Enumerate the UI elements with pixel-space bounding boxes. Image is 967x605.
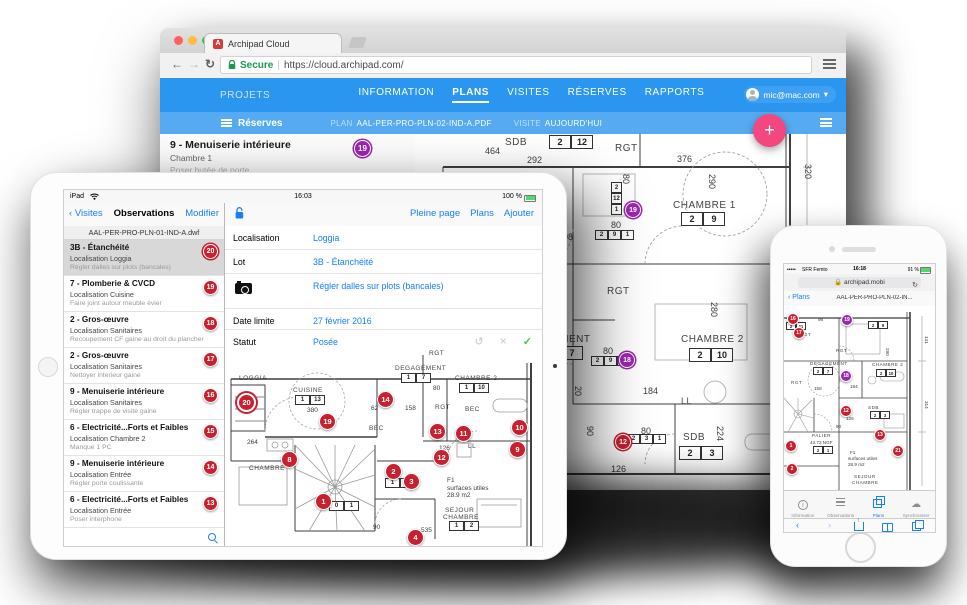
plan-label: 280 (709, 302, 719, 317)
account-menu[interactable]: mic@mac.com ▾ (744, 86, 836, 103)
plan-label: DEGAGEMENT (395, 365, 446, 372)
visite-label: VISITE (514, 119, 541, 128)
statut-value[interactable]: Posée (313, 337, 338, 347)
unlock-icon[interactable] (234, 207, 245, 220)
plan-label: 43.72 NGF (810, 440, 832, 445)
iphone-camera (829, 246, 835, 252)
plans-icon (873, 496, 884, 507)
plan-value[interactable]: AAL-PER-PRO-PLN-02-IND-A.PDF (357, 119, 492, 128)
plan-label: 90 (373, 524, 380, 531)
forward-icon[interactable]: › (828, 520, 831, 530)
browser-menu-icon[interactable] (823, 59, 836, 70)
observations-list: AAL-PER-PRO-PLN-01-IND-A.dwf 3B - Étanch… (64, 226, 225, 546)
iphone-speaker (842, 247, 876, 252)
back-to-plans-button[interactable]: ‹ Plans (788, 294, 810, 301)
plan-label: 20 (573, 386, 583, 396)
field-label: Statut (233, 337, 256, 347)
browser-tabstrip: A Archipad Cloud (160, 28, 846, 54)
avatar (746, 88, 759, 101)
undo-icon[interactable]: ↺ (475, 335, 484, 348)
field-label: Date limite (233, 316, 275, 326)
lot-count-box: 110 (459, 383, 489, 393)
clock: 16:03 (64, 193, 542, 200)
plan-label: PALIER (812, 433, 831, 438)
tab-title: Archipad Cloud (228, 39, 290, 49)
plan-label: RGT (615, 143, 638, 154)
plan-label: 184 (850, 384, 858, 389)
obs-title: 6 - Electricité...Forts et Faibles (70, 495, 218, 504)
reserves-menu-icon[interactable] (221, 119, 232, 127)
app-subtoolbar: Réserves PLAN AAL-PER-PRO-PLN-02-IND-A.P… (160, 112, 846, 134)
marketing-composition: A Archipad Cloud ← → ↻ Secure | https://… (0, 0, 967, 605)
obs-title: 2 - Gros-œuvre (70, 315, 218, 324)
battery-icon (920, 267, 931, 274)
obs-location: Localisation Cuisine (70, 290, 218, 299)
observation-marker[interactable]: 1 (785, 440, 797, 452)
info-icon: i (798, 500, 808, 510)
observation-marker[interactable]: 20 (237, 393, 256, 412)
plan-label: 80 (621, 174, 631, 184)
status-badge: 19 (354, 140, 371, 157)
lot-value[interactable]: 3B - Étanchéité (313, 257, 373, 267)
obs-location: Localisation Entrée (70, 506, 218, 515)
obs-note: Poser interphone (70, 516, 218, 523)
plan-label: 62 (371, 405, 378, 412)
plan-label: CHAMBRE 1 (673, 200, 736, 211)
note-value[interactable]: Régler dalles sur plots (bancales) (313, 281, 444, 291)
nav-item[interactable]: VISITES (507, 87, 550, 103)
plan-file-name: AAL-PER-PRO-PLN-01-IND-A.dwf (64, 226, 224, 240)
obs-number-badge: 17 (203, 352, 218, 367)
plan-label: 80 (603, 346, 613, 356)
lot-count-box: 27 (813, 367, 833, 375)
obs-title: 9 - Menuiserie intérieure (70, 387, 218, 396)
plan-label: CUISINE (293, 387, 323, 394)
obs-note: Manque 1 PC (70, 444, 218, 451)
url-text: archipad.mobi (844, 279, 885, 286)
obs-title: 6 - Electricité...Forts et Faibles (70, 423, 218, 432)
plan-label: 28.9 m2 (848, 462, 865, 467)
lock-icon (228, 60, 236, 70)
plan-label: 464 (485, 146, 500, 156)
plan-label: 141 (924, 336, 929, 344)
lock-icon: 🔒 (834, 279, 842, 286)
favicon: A (213, 39, 223, 49)
lot-count-box: 29 (868, 321, 888, 329)
plan-label: CHAMBRE 2 (872, 362, 903, 367)
observation-marker[interactable]: 4 (407, 529, 424, 546)
nav-item[interactable]: PLANS (452, 87, 489, 103)
iphone-floorplan[interactable]: 98RGTRGT290DEGAGEMENTCHAMBRE 2RGT158184S… (784, 306, 935, 490)
observation-marker[interactable]: 19 (319, 413, 336, 430)
search-icon[interactable] (208, 533, 218, 543)
plan-label: F1 (447, 477, 455, 484)
iphone-home-button[interactable] (845, 532, 876, 563)
plan-label: 264 (247, 439, 258, 446)
plan-label: 80 (433, 385, 440, 392)
battery-icon (524, 195, 536, 202)
observation-marker[interactable]: 19 (841, 314, 853, 326)
observation-list-item[interactable]: 3B - Étanchéité Localisation Loggia Régl… (64, 240, 224, 276)
nav-item[interactable]: RÉSERVES (568, 87, 627, 103)
plan-label: LL (468, 443, 476, 450)
plan-label: 28.9 m2 (447, 492, 471, 499)
obs-number-badge: 15 (203, 424, 218, 439)
battery-percent: 100 % (502, 193, 522, 200)
reload-icon[interactable]: ↻ (912, 280, 918, 291)
observation-marker[interactable]: 18 (840, 370, 852, 382)
browser-urlbar: ← → ↻ Secure | https://cloud.archipad.co… (160, 53, 846, 79)
action-button[interactable]: Ajouter (504, 208, 534, 219)
plan-actions: Pleine pagePlansAjouter (410, 208, 534, 219)
plan-label: 380 (307, 407, 318, 414)
observation-marker[interactable]: 11 (455, 425, 472, 442)
account-email: mic@mac.com (763, 90, 819, 100)
lot-count-box: 2121 (611, 182, 622, 215)
share-icon[interactable] (854, 522, 864, 531)
back-icon[interactable]: ← (171, 57, 183, 71)
plan-label: CHAMBRE 2 (455, 375, 497, 382)
obs-location: Localisation Loggia (70, 254, 218, 263)
plan-label: 290 (707, 174, 717, 189)
obs-location: Localisation Sanitaires (70, 362, 218, 371)
lot-count-box: 01 (329, 501, 359, 511)
validate-icon[interactable]: ✓ (523, 335, 532, 348)
ipad-toolbar: ‹ Visites Observations Modifier Pleine p… (64, 203, 542, 227)
nav-item[interactable]: INFORMATION (358, 87, 434, 103)
ipad-screen: iPad 16:03 100 % ‹ Visites Observations … (63, 189, 543, 547)
view-list-icon[interactable] (820, 118, 832, 128)
plan-label: 314 (924, 401, 929, 409)
ipad-camera (553, 364, 557, 368)
plan-label: LL (681, 396, 692, 406)
observation-marker[interactable]: 19 (625, 202, 641, 218)
iphone-status-bar: ••••• SFR Femto 16:18 91 % (784, 264, 935, 274)
url-field[interactable]: Secure | https://cloud.archipad.com/ (220, 56, 812, 74)
obs-note: Régler porte coulissante (70, 480, 218, 487)
obs-title: 2 - Gros-œuvre (70, 351, 218, 360)
plan-label: 158 (814, 386, 822, 391)
observation-marker[interactable]: 8 (281, 451, 298, 468)
observation-marker[interactable]: 12 (615, 434, 631, 450)
plan-label: 320 (803, 164, 813, 179)
observation-marker[interactable]: 18 (619, 352, 635, 368)
plan-label: DEGAGEMENT (810, 361, 848, 366)
observation-list-item[interactable]: 9 - Menuiserie intérieure Localisation S… (64, 384, 224, 420)
iphone-device: ••••• SFR Femto 16:18 91 % 🔒 archipad.mo… (770, 225, 947, 567)
observation-marker[interactable]: 13 (429, 423, 446, 440)
date-value[interactable]: 27 février 2016 (313, 316, 372, 326)
plan-label: RGT (435, 404, 450, 411)
camera-icon[interactable] (235, 283, 252, 294)
lot-count-box: 291 (595, 230, 634, 240)
obs-location: Localisation Sanitaires (70, 326, 218, 335)
secure-label: Secure (240, 60, 273, 71)
plan-label: RGT (791, 380, 802, 385)
observation-marker[interactable]: 10 (511, 419, 528, 436)
iphone-screen: ••••• SFR Femto 16:18 91 % 🔒 archipad.mo… (783, 263, 936, 533)
plan-label: CHAMBRE 2 (681, 334, 744, 345)
safari-urlbar: 🔒 archipad.mobi ↻ (784, 274, 935, 292)
obs-note: Recoupement CF gaine au droit du planche… (70, 336, 218, 343)
list-icon (835, 496, 846, 507)
new-tab-button[interactable] (348, 37, 367, 48)
lot-count-box: 12 (449, 521, 479, 531)
tab-information[interactable]: i Information (784, 491, 822, 519)
bookmarks-icon[interactable] (882, 523, 893, 532)
lot-count-box: 23 (870, 411, 890, 419)
plan-label: 98 (818, 317, 823, 322)
plan-label: 224 (715, 426, 725, 441)
add-observation-fab[interactable]: + (753, 114, 786, 147)
observation-list-item[interactable]: 6 - Electricité...Forts et Faibles Local… (64, 492, 224, 528)
back-icon[interactable]: ‹ (796, 520, 799, 530)
observation-marker[interactable]: 21 (892, 445, 904, 457)
plan-label: 80 (611, 220, 621, 230)
obs-note: Régler dalles sur plots (bancales) (70, 264, 218, 271)
plan-label: 292 (527, 155, 542, 165)
plan-label: surfaces utiles (447, 485, 489, 492)
plan-label: CHAMBRE (852, 480, 878, 485)
plan-label: F1 (850, 450, 855, 455)
plan-label: CHAMBRE (443, 514, 479, 521)
obs-note: Faire joint autour meuble évier (70, 300, 218, 307)
nav-projets[interactable]: PROJETS (220, 90, 270, 101)
plan-label: SDB (868, 405, 879, 410)
obs-number-badge: 16 (203, 388, 218, 403)
observation-marker[interactable]: 2 (385, 463, 402, 480)
cloud-sync-icon: ☁ (911, 499, 922, 510)
reload-icon[interactable]: ↻ (205, 57, 215, 71)
plan-label: RGT (429, 350, 444, 357)
observation-marker[interactable]: 2 (786, 463, 798, 475)
plan-label: surfaces utiles (848, 456, 877, 461)
url-field[interactable]: 🔒 archipad.mobi ↻ (798, 277, 921, 288)
url-text: https://cloud.archipad.com/ (284, 60, 404, 71)
observation-list-item[interactable]: 2 - Gros-œuvre Localisation Sanitaires N… (64, 348, 224, 384)
ipad-home-button[interactable] (38, 357, 58, 377)
url-separator: | (277, 60, 280, 71)
obs-note: Régler trappe de visite gaine (70, 408, 218, 415)
obs-title: 3B - Étanchéité (70, 243, 218, 252)
plan-label: 90 (585, 426, 595, 436)
plan-label: BEC (369, 425, 384, 432)
field-label: Lot (233, 257, 245, 267)
plan-label: 90 (836, 424, 841, 429)
tab-synchroniser[interactable]: ☁ Synchroniser (897, 491, 935, 519)
tabs-icon[interactable] (912, 522, 921, 531)
nav-menu: INFORMATIONPLANSVISITESRÉSERVESRAPPORTS (358, 87, 704, 103)
lot-count-box: 23 (679, 446, 723, 460)
reject-icon[interactable]: × (500, 334, 507, 348)
lot-count-box: 210 (689, 348, 733, 362)
ipad-floorplan[interactable]: LOGGIACUISINE380DEGAGEMENTRGTCHAMBRE 2RG… (225, 349, 542, 546)
plan-label: SDB (683, 432, 705, 443)
visite-value[interactable]: AUJOURD'HUI (545, 119, 602, 128)
nav-item[interactable]: RAPPORTS (645, 87, 705, 103)
battery-percent: 91 % (908, 267, 919, 273)
forward-icon[interactable]: → (188, 57, 200, 71)
observation-marker[interactable]: 1 (315, 493, 332, 510)
ipad-status-bar: iPad 16:03 100 % (64, 190, 542, 203)
lot-count-box: 212 (549, 135, 593, 149)
lot-count-box: 29 (681, 212, 725, 226)
observation-marker[interactable]: 9 (509, 441, 526, 458)
observation-marker[interactable]: 3 (403, 473, 420, 490)
action-button[interactable]: Plans (470, 208, 494, 219)
action-button[interactable]: Pleine page (410, 208, 460, 219)
lot-count-box: 113 (295, 395, 325, 405)
tab-observations[interactable]: Observations (822, 491, 860, 519)
ipad-device: iPad 16:03 100 % ‹ Visites Observations … (30, 172, 567, 560)
account-caret-icon: ▾ (824, 89, 828, 100)
obs-title: 7 - Plomberie & CVCD (70, 279, 218, 288)
lot-count-box: 231 (627, 434, 666, 444)
plan-label: BEC (465, 406, 480, 413)
lot-count-box: 21 (813, 446, 833, 454)
plan-label: CHAMBRE (249, 465, 285, 472)
obs-note: Nettoyer interieur gaine (70, 372, 218, 379)
app-nav-bar: ‹ Plans AAL-PER-PRO-PLN-02-IN... (784, 291, 935, 307)
item-location: Chambre 1 (170, 153, 405, 163)
obs-title: 9 - Menuiserie intérieure (70, 459, 218, 468)
lot-count-box: 210 (876, 369, 896, 377)
obs-number-badge: 19 (203, 280, 218, 295)
plan-label: SEJOUR (445, 507, 474, 514)
observation-list-item[interactable]: 2 - Gros-œuvre Localisation Sanitaires R… (64, 312, 224, 348)
tab-plans[interactable]: Plans (860, 491, 898, 519)
localisation-value[interactable]: Loggia (313, 233, 339, 243)
observation-list-item[interactable]: 6 - Electricité...Forts et Faibles Local… (64, 420, 224, 456)
obs-location: Localisation Entrée (70, 470, 218, 479)
observation-list-item[interactable]: 9 - Menuiserie intérieure Localisation E… (64, 456, 224, 492)
lot-count-box: 17 (401, 373, 431, 383)
close-window-button[interactable] (174, 36, 183, 45)
browser-tab[interactable]: A Archipad Cloud (204, 33, 342, 53)
plan-file-name: AAL-PER-PRO-PLN-02-IN... (818, 295, 931, 301)
modifier-button[interactable]: Modifier (185, 208, 219, 219)
plan-label: 290 (885, 348, 890, 356)
observation-marker[interactable]: 14 (377, 391, 394, 408)
plan-label: LOGGIA (239, 375, 267, 382)
obs-number-badge: 13 (203, 496, 218, 511)
plan-label: 158 (405, 405, 416, 412)
field-label: Localisation (233, 233, 279, 243)
obs-location: Localisation Sanitaires (70, 398, 218, 407)
obs-number-badge: 18 (203, 316, 218, 331)
minimize-window-button[interactable] (188, 36, 197, 45)
plan-label: SEJOUR (854, 474, 876, 479)
plan-label: 376 (677, 154, 692, 164)
plan-label: RGT (607, 286, 630, 297)
plan-label: PLAN (330, 119, 352, 128)
observation-detail: Localisation Loggia Lot 3B - Étanchéité … (225, 226, 542, 349)
observation-marker[interactable]: 17 (793, 327, 805, 339)
plan-label: 184 (643, 386, 658, 396)
plan-label: SDB (505, 137, 527, 148)
app-tab-bar: i Information Observations Plans ☁ Synch… (784, 490, 935, 519)
obs-location: Localisation Chambre 2 (70, 434, 218, 443)
obs-number-badge: 20 (203, 244, 218, 259)
obs-number-badge: 14 (203, 460, 218, 475)
app-navbar: PROJETS INFORMATIONPLANSVISITESRÉSERVESR… (160, 78, 846, 112)
observation-marker[interactable]: 12 (433, 449, 450, 466)
plan-label: RGT (836, 348, 847, 353)
observation-marker[interactable]: 12 (840, 405, 852, 417)
observation-list-item[interactable]: 7 - Plomberie & CVCD Localisation Cuisin… (64, 276, 224, 312)
safari-toolbar: ‹ › (784, 518, 935, 533)
reserves-label[interactable]: Réserves (238, 118, 282, 129)
observation-marker[interactable]: 13 (874, 429, 886, 441)
observation-marker[interactable]: 16 (787, 313, 799, 325)
plan-label: 126 (611, 464, 626, 474)
